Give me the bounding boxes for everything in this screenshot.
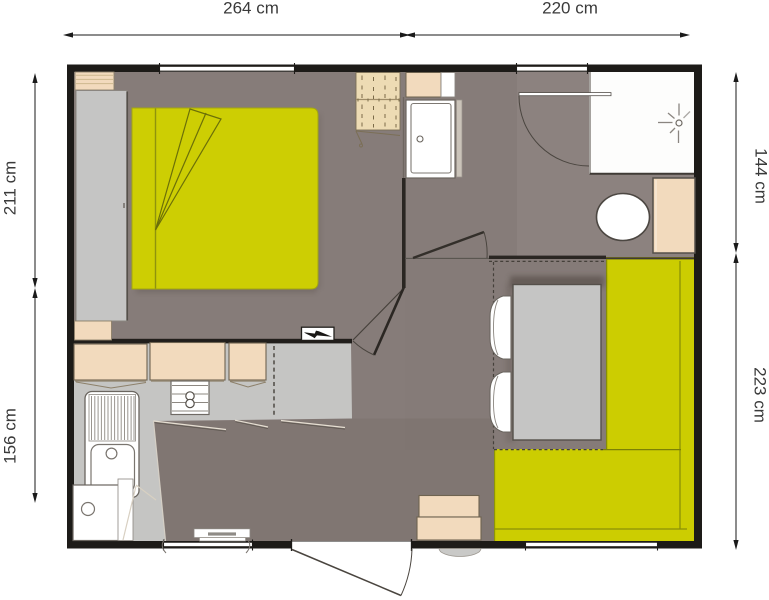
svg-text:264 cm: 264 cm bbox=[223, 0, 279, 18]
svg-text:144 cm: 144 cm bbox=[752, 148, 769, 204]
svg-text:156 cm: 156 cm bbox=[1, 408, 20, 464]
svg-text:211 cm: 211 cm bbox=[1, 161, 20, 216]
svg-text:223 cm: 223 cm bbox=[751, 367, 769, 423]
svg-text:220 cm: 220 cm bbox=[542, 0, 598, 18]
